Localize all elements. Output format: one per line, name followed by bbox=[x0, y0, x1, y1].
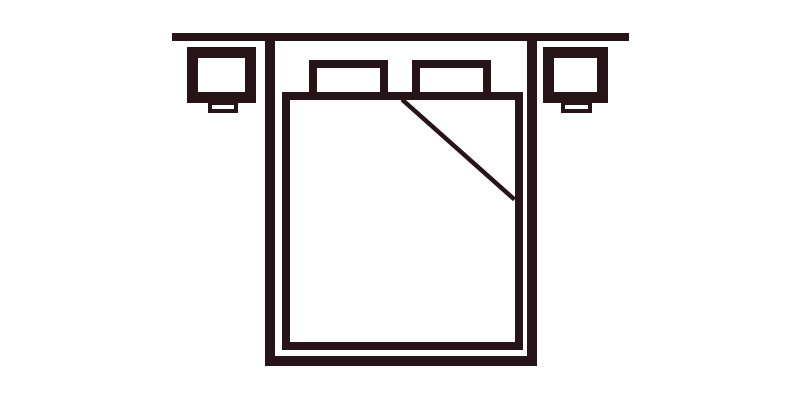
mattress-outline bbox=[282, 92, 523, 350]
nightstand-left-icon bbox=[187, 47, 256, 103]
bed-floor-plan-figure bbox=[0, 0, 800, 400]
pillow-right-icon bbox=[412, 60, 491, 100]
nightstand-left-foot bbox=[208, 101, 238, 113]
nightstand-right-icon bbox=[543, 47, 608, 103]
nightstand-right-foot bbox=[561, 101, 592, 113]
pillow-left-icon bbox=[309, 60, 388, 100]
